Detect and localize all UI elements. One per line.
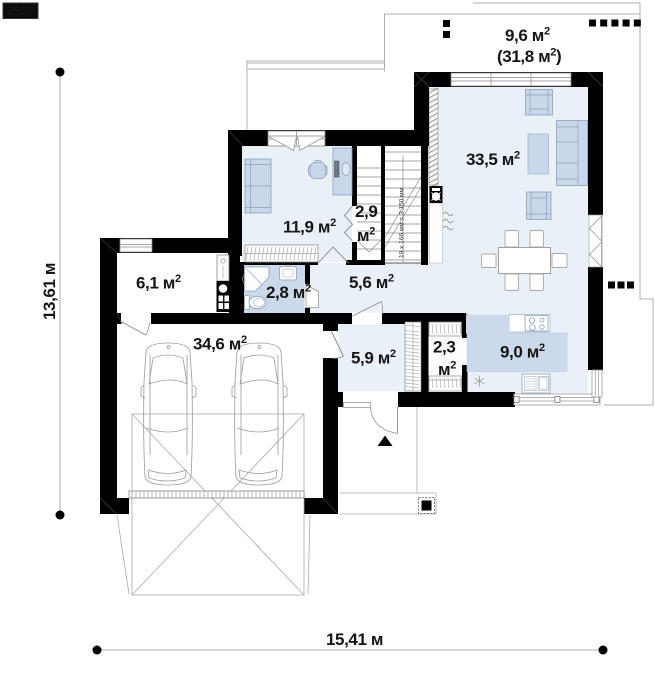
svg-text:2,9: 2,9 (355, 202, 377, 221)
svg-text:Z500: Z500 (7, 5, 34, 19)
svg-text:2,3: 2,3 (433, 338, 455, 357)
svg-text:2,8 м2: 2,8 м2 (266, 283, 311, 303)
svg-text:19 x 166 мм = 3 150 мм: 19 x 166 мм = 3 150 мм (399, 187, 406, 258)
svg-text:9,0 м2: 9,0 м2 (500, 342, 545, 362)
svg-text:15,41 м: 15,41 м (326, 630, 383, 649)
svg-text:33,5 м2: 33,5 м2 (466, 150, 520, 170)
svg-text:©: © (31, 5, 36, 12)
svg-text:5,9 м2: 5,9 м2 (351, 348, 396, 368)
svg-text:11,9 м2: 11,9 м2 (283, 217, 336, 237)
svg-text:5,6 м2: 5,6 м2 (349, 273, 394, 293)
svg-text:13,61 м: 13,61 м (40, 263, 59, 320)
svg-text:34,6 м2: 34,6 м2 (193, 334, 247, 354)
svg-text:9,6 м2: 9,6 м2 (505, 26, 550, 46)
svg-text:6,1 м2: 6,1 м2 (136, 273, 181, 293)
